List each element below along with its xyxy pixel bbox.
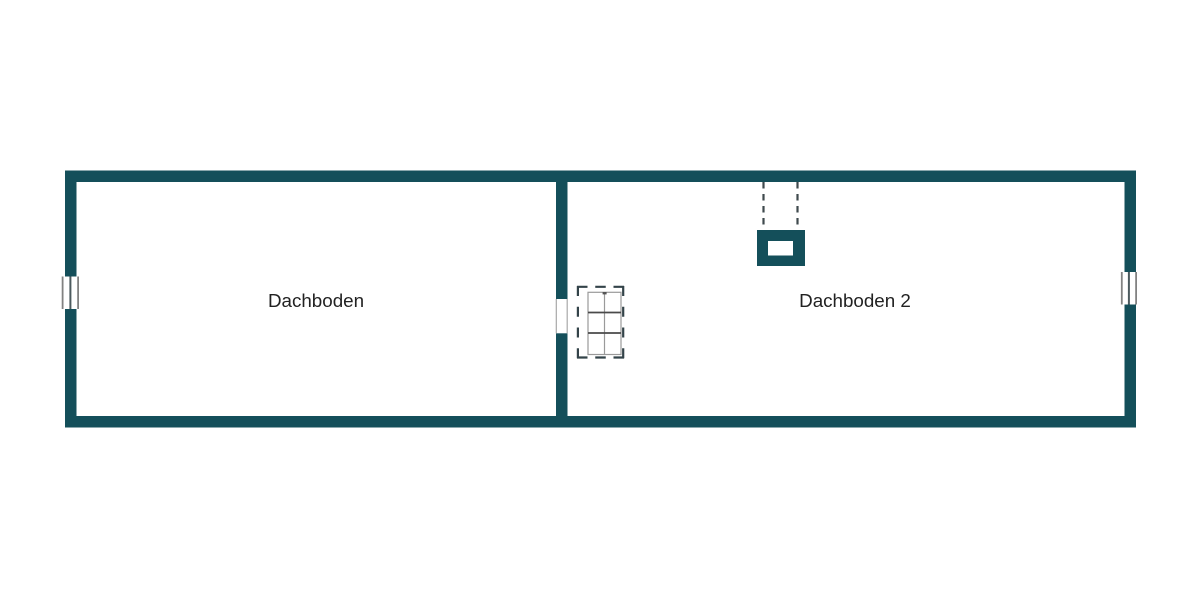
svg-text:Dachboden 2: Dachboden 2: [799, 290, 911, 311]
svg-text:Dachboden: Dachboden: [268, 290, 364, 311]
